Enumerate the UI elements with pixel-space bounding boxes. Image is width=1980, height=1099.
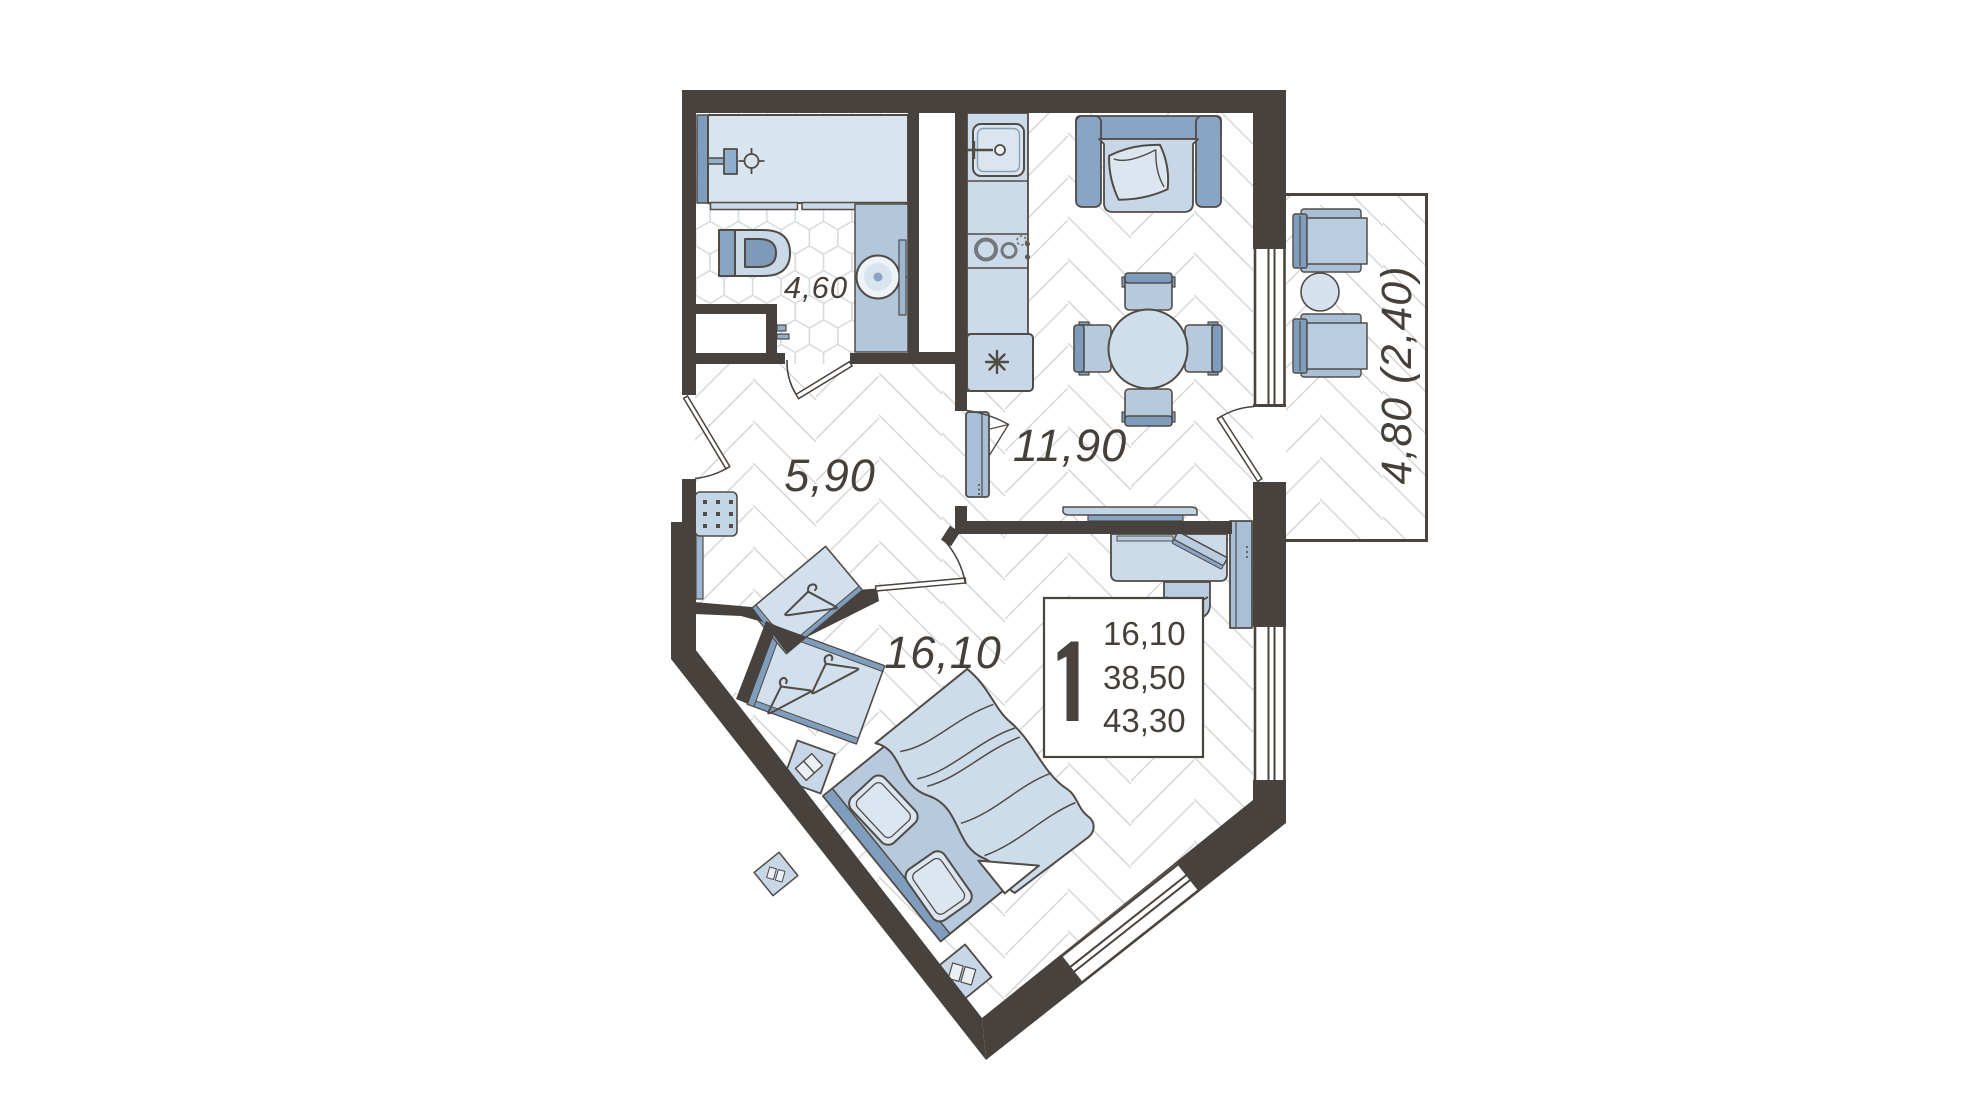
svg-text:5,90: 5,90 [784,450,876,501]
svg-text:16,10: 16,10 [1103,615,1186,652]
svg-text:4,80 (2,40): 4,80 (2,40) [1373,266,1421,485]
svg-text:16,10: 16,10 [884,627,1002,678]
svg-text:38,50: 38,50 [1103,659,1186,696]
svg-text:4,60: 4,60 [784,270,848,305]
svg-text:43,30: 43,30 [1103,702,1186,739]
svg-text:11,90: 11,90 [1013,420,1127,471]
